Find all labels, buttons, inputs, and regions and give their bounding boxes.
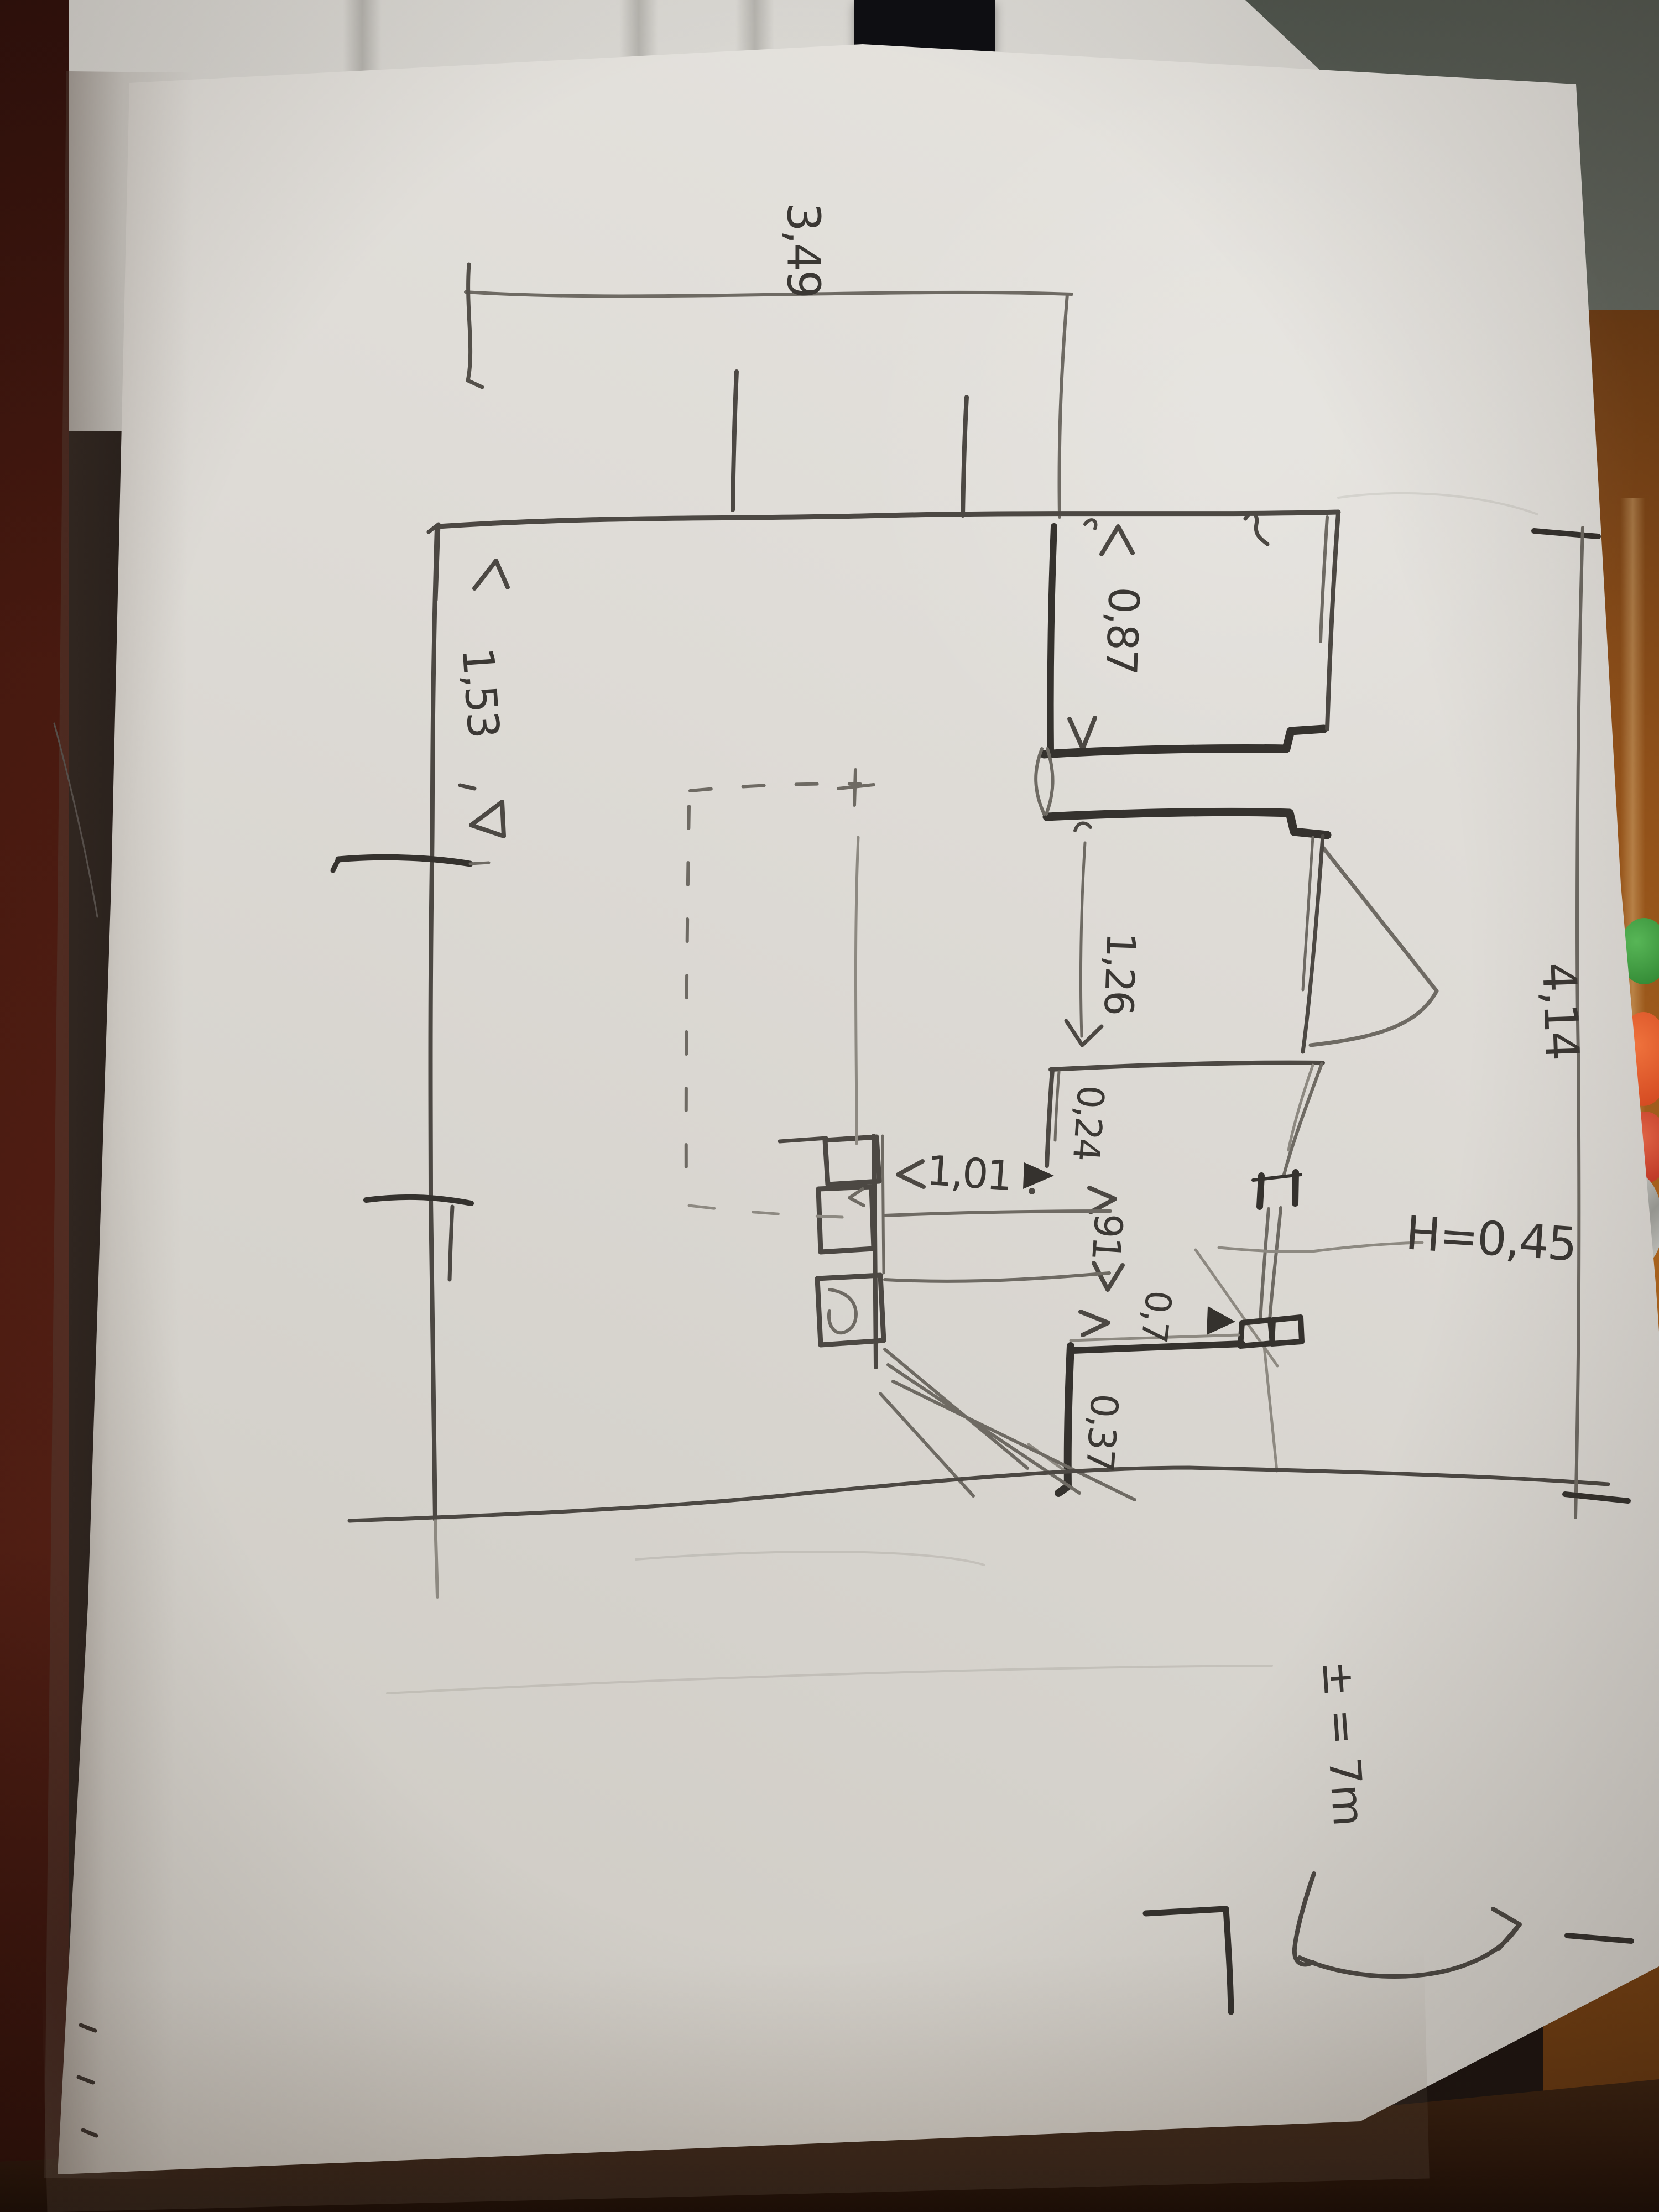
photo-of-floor-plan-sketch: 3,49 4,14 0,87 1,53 1,26 0,24 1,01 91 0,…: [0, 0, 1659, 2212]
photo-vignette: [0, 0, 1659, 2212]
